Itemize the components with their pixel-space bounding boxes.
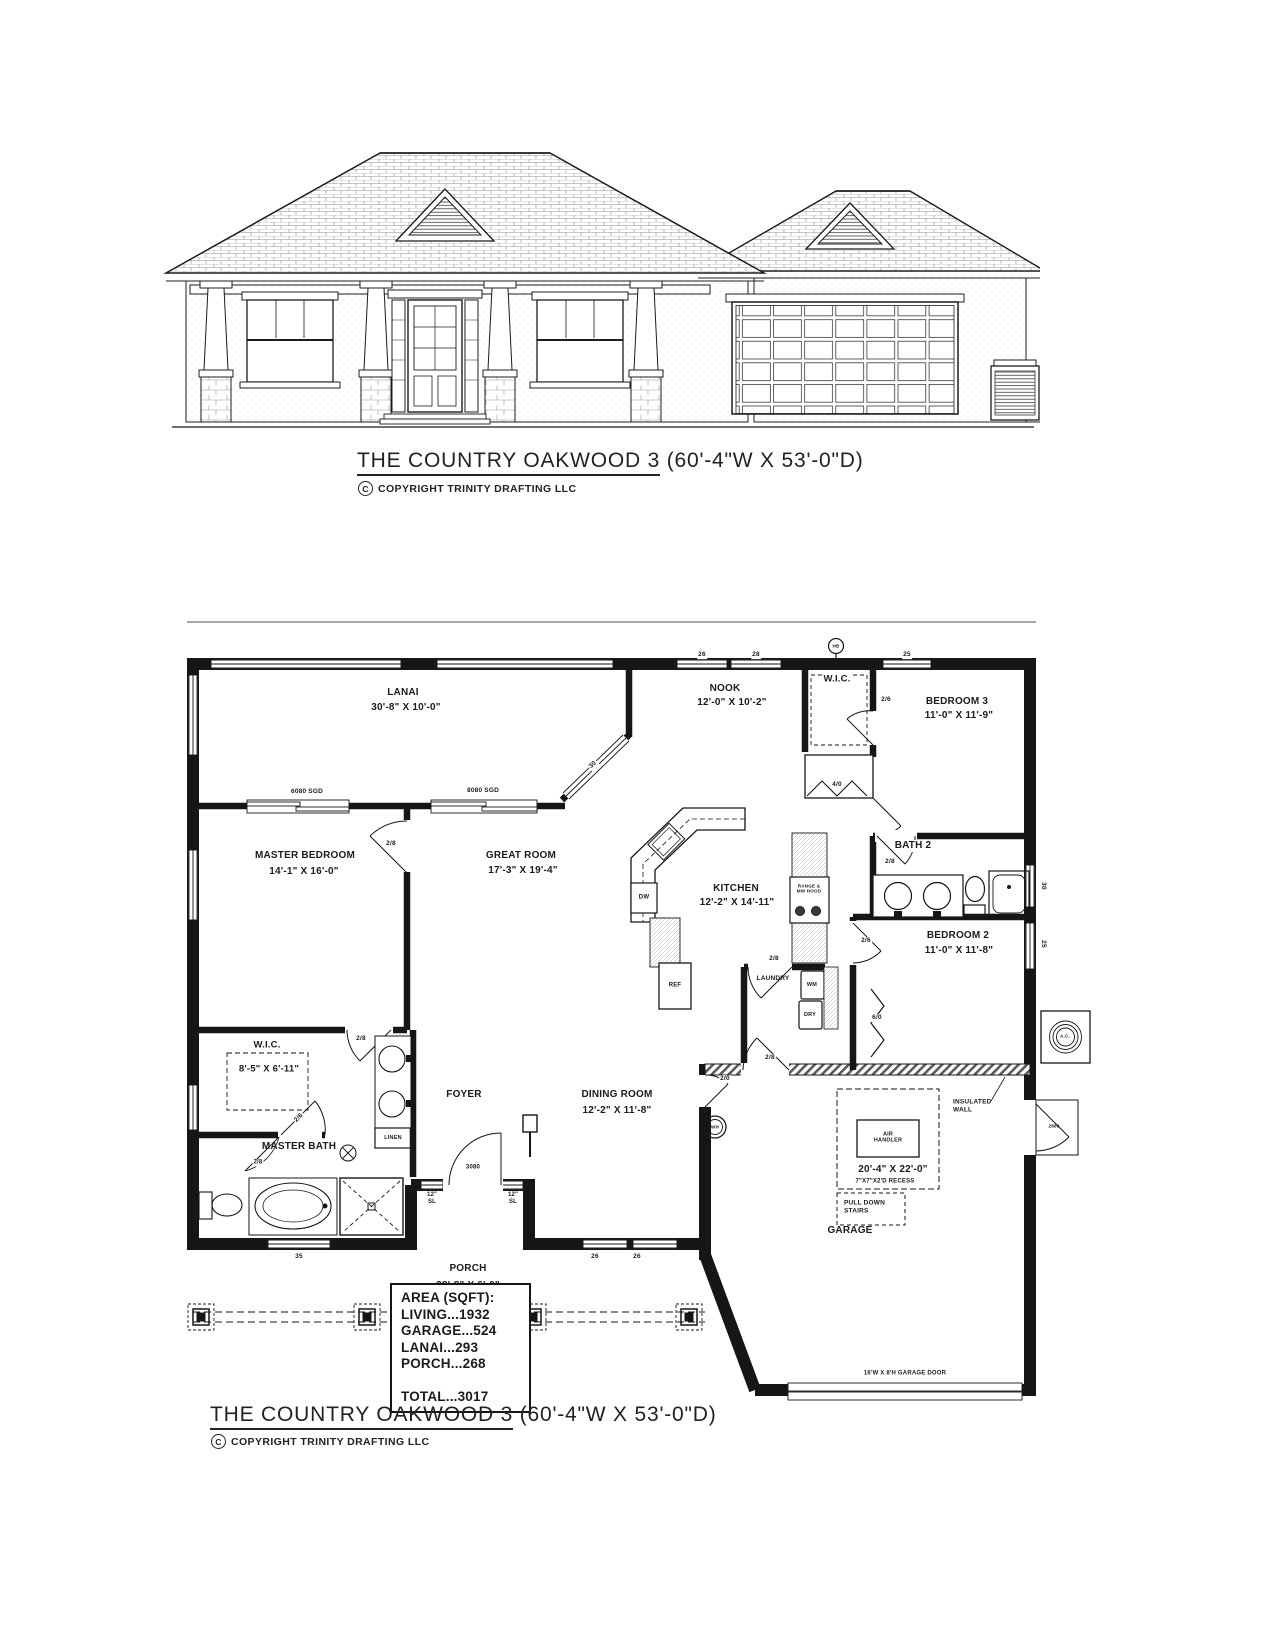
master-wic-outline	[227, 1053, 308, 1110]
room-dims-lanai: 30'-8" X 10'-0"	[371, 702, 441, 714]
floor-plan-drawing	[185, 615, 1097, 1405]
room-label-master-bedroom: MASTER BEDROOM	[255, 850, 355, 862]
door-size-master-hall: 2/8	[355, 1035, 367, 1043]
annotation-insulated-wall: INSULATED WALL	[953, 1098, 992, 1113]
copyright-icon: C	[358, 481, 373, 496]
room-label-kitchen: KITCHEN	[713, 883, 759, 895]
floor-plan-title: THE COUNTRY OAKWOOD 3 (60'-4"W X 53'-0"D…	[210, 1403, 717, 1427]
area-table-spacer	[401, 1373, 525, 1389]
area-row-lanai: LANAI...293	[401, 1340, 525, 1357]
door-size-wic-top: 2/6	[880, 696, 892, 704]
window-size-dining-a: 26	[591, 1253, 599, 1261]
copyright-line-top: C COPYRIGHT TRINITY DRAFTING LLC	[358, 481, 576, 496]
room-label-porch: PORCH	[449, 1263, 486, 1275]
door-size-closet-top: 4/0	[831, 781, 843, 789]
ac-unit-elevation	[986, 360, 1040, 422]
plan-size: (60'-4"W X 53'-0"D)	[667, 449, 864, 472]
room-dims-bedroom3: 11'-0" X 11'-9"	[925, 710, 993, 722]
range	[790, 833, 829, 963]
copyright-icon-bottom: C	[211, 1434, 226, 1449]
room-dims-master-wic: 8'-5" X 6'-11"	[238, 1063, 300, 1074]
area-row-garage: GARAGE...524	[401, 1323, 525, 1340]
foyer-column	[523, 1115, 537, 1132]
linen-label: LINEN	[384, 1135, 402, 1141]
refrigerator-label: REF	[669, 982, 682, 989]
door-size-bath2: 2/8	[884, 858, 896, 866]
elevation-window-left	[240, 292, 340, 388]
room-dims-garage: 20'-4" X 22'-0"	[858, 1164, 928, 1176]
door-size-exterior-side: 2880	[1048, 1123, 1059, 1128]
annotation-garage-door: 16'W X 8'H GARAGE DOOR	[864, 1370, 946, 1377]
bath2-fixtures	[873, 871, 1029, 917]
room-label-bedroom2: BEDROOM 2	[927, 930, 989, 942]
room-label-lanai: LANAI	[387, 687, 419, 699]
sidelight-right-label: 12" SL	[508, 1192, 518, 1206]
dishwasher-label: DW	[639, 894, 649, 901]
door-size-garage-closet: 2/0	[719, 1075, 731, 1083]
room-dims-kitchen: 12'-2" X 14'-11"	[700, 897, 775, 909]
elevation-title: THE COUNTRY OAKWOOD 3 (60'-4"W X 53'-0"D…	[357, 449, 864, 473]
room-label-master-wic: W.I.C.	[252, 1039, 281, 1050]
plan-sheet: THE COUNTRY OAKWOOD 3 (60'-4"W X 53'-0"D…	[0, 0, 1275, 1650]
door-size-master-bath: 2/8	[253, 1159, 264, 1166]
hose-bib	[829, 639, 844, 660]
garage-recess-note: 7"X7"X2'D RECESS	[855, 1178, 914, 1185]
window-size-bedroom2: 25	[1039, 940, 1047, 948]
room-label-laundry: LAUNDRY	[757, 975, 790, 983]
window-size-top-a: 26	[697, 651, 707, 659]
door-size-laundry: 2/8	[768, 955, 780, 963]
entry-door	[380, 290, 490, 424]
sidelight-left-label: 12" SL	[427, 1192, 437, 1206]
room-label-foyer: FOYER	[446, 1089, 481, 1101]
ac-label: A.C.	[1060, 1033, 1070, 1038]
window-size-bath: 35	[295, 1253, 303, 1261]
window-size-dining-b: 26	[633, 1253, 641, 1261]
room-dims-nook: 12'-0" X 10'-2"	[697, 697, 767, 709]
elevation-window-right	[530, 292, 630, 388]
room-dims-great-room: 17'-3" X 19'-4"	[488, 865, 558, 877]
elevation-drawing	[150, 145, 1040, 445]
annotation-sgd-master: 6080 SGD	[290, 788, 324, 796]
room-label-great-room: GREAT ROOM	[486, 850, 556, 862]
room-label-master-bath: MASTER BATH	[262, 1141, 336, 1153]
plan-name: THE COUNTRY OAKWOOD 3	[357, 449, 660, 476]
hose-bib-label: HB	[832, 643, 839, 648]
room-dims-dining: 12'-2" X 11'-8"	[583, 1105, 652, 1117]
room-dims-master-bedroom: 14'-1" X 16'-0"	[269, 866, 339, 878]
garage-door-plan	[788, 1383, 1022, 1400]
room-dims-bedroom2: 11'-0" X 11'-8"	[925, 945, 993, 957]
washer-label: WM	[807, 982, 817, 988]
room-label-bath2: BATH 2	[894, 840, 933, 852]
area-table-title: AREA (SQFT):	[401, 1290, 525, 1307]
floor-plan: LANAI 30'-8" X 10'-0" NOOK 12'-0" X 10'-…	[185, 615, 1097, 1405]
pull-down-stairs-label: PULL DOWN STAIRS	[844, 1199, 885, 1214]
area-row-porch: PORCH...268	[401, 1356, 525, 1373]
room-label-garage: GARAGE	[827, 1225, 872, 1237]
garage-door	[726, 294, 964, 414]
door-size-closet-bedroom2: 6/0	[871, 1014, 883, 1022]
range-label: RANGE & MW HOOD	[797, 884, 822, 895]
window-size-top-bed3: 25	[902, 651, 912, 659]
copyright-line-bottom: C COPYRIGHT TRINITY DRAFTING LLC	[211, 1434, 429, 1449]
area-table: AREA (SQFT): LIVING...1932 GARAGE...524 …	[390, 1283, 531, 1413]
door-size-bedroom2: 2/6	[860, 937, 872, 945]
window-size-bath2: 30	[1039, 882, 1047, 890]
annotation-sgd-great: 8080 SGD	[466, 787, 500, 795]
door-size-master-bedroom: 2/8	[385, 840, 397, 848]
area-row-living: LIVING...1932	[401, 1307, 525, 1324]
air-handler-label: AIR HANDLER	[874, 1132, 902, 1145]
window-size-top-b: 28	[751, 651, 761, 659]
door-size-front: 3080	[465, 1164, 481, 1171]
room-label-dining: DINING ROOM	[581, 1089, 652, 1101]
room-label-wic-top: W.I.C.	[822, 673, 851, 684]
room-label-bedroom3: BEDROOM 3	[926, 696, 988, 708]
room-label-nook: NOOK	[710, 683, 741, 695]
plan-size-bottom: (60'-4"W X 53'-0"D)	[520, 1403, 717, 1426]
door-size-garage-entry: 2/8	[764, 1054, 776, 1062]
plan-name-bottom: THE COUNTRY OAKWOOD 3	[210, 1403, 513, 1430]
dryer-label: DRY	[804, 1012, 816, 1018]
water-heater-label: WH	[711, 1124, 719, 1129]
